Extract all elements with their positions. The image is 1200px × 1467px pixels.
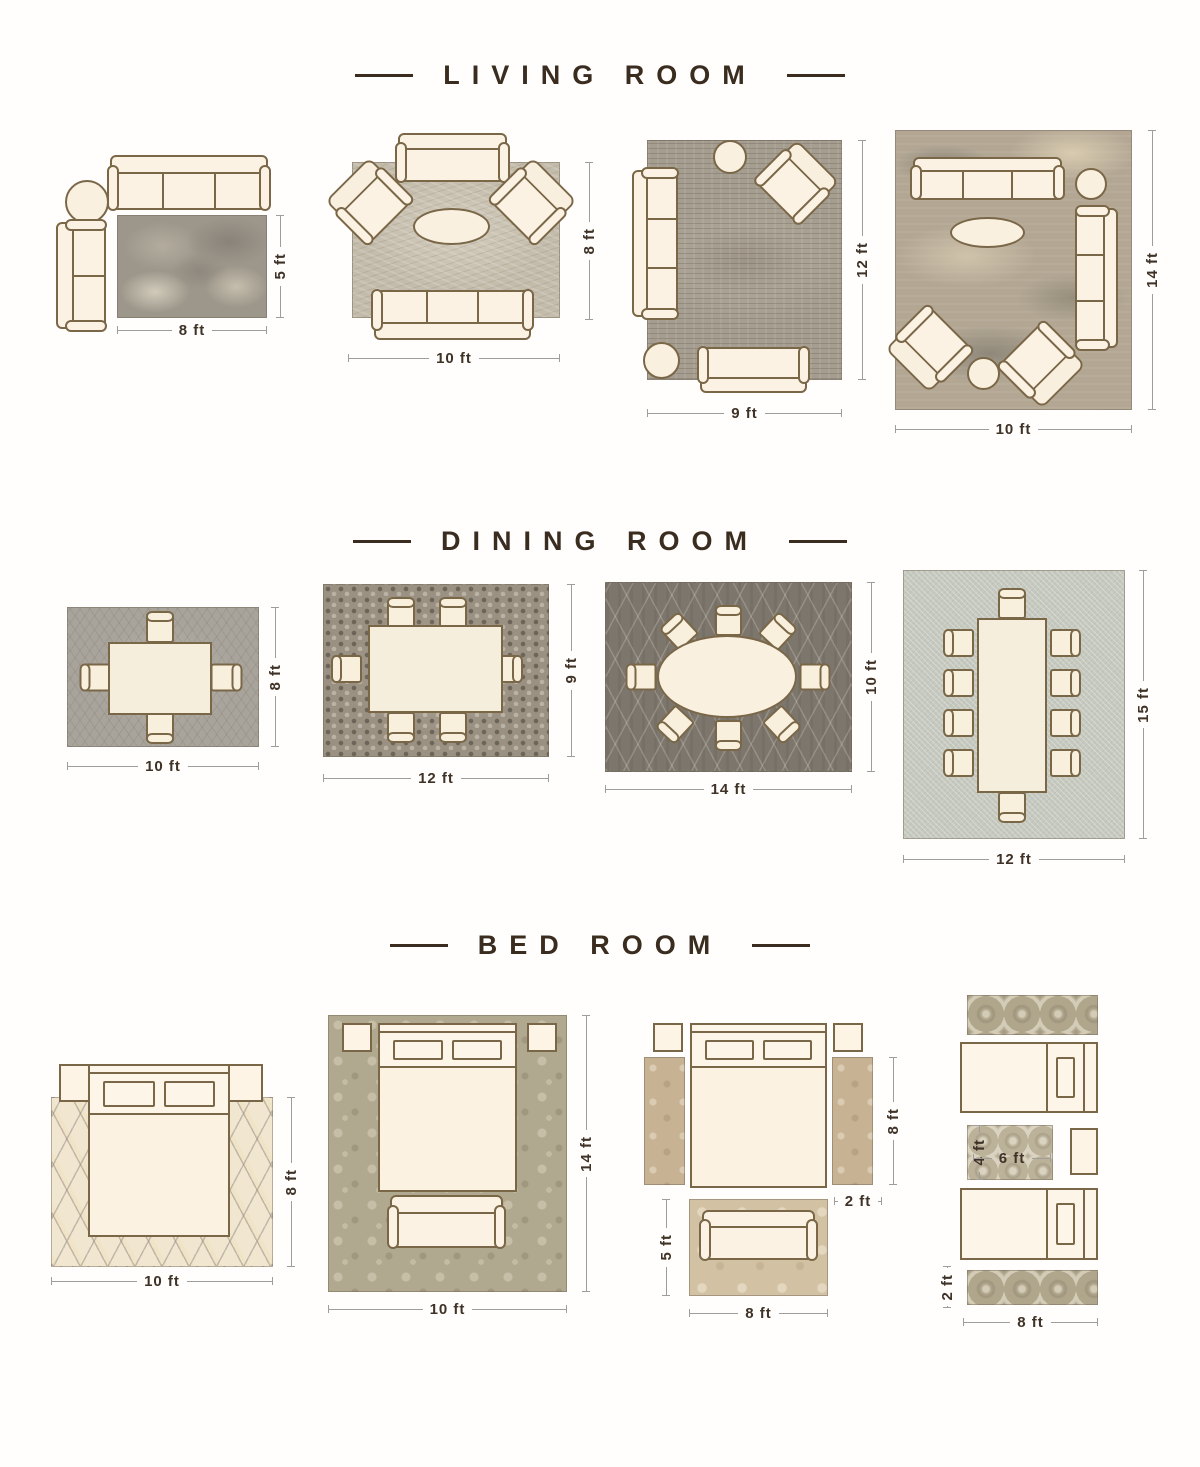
dimension-label: 6 ft	[992, 1150, 1033, 1167]
title-dash-right	[752, 944, 810, 947]
dining-layout-9x12: 12 ft 9 ft	[323, 584, 585, 794]
round-side-table-top	[1075, 168, 1107, 200]
pillow	[164, 1081, 216, 1107]
bench	[702, 1210, 815, 1260]
living-room-section-title: LIVING ROOM	[0, 60, 1200, 91]
rug-width-dimension: 8 ft	[117, 322, 267, 338]
dimension-label: 5 ft	[272, 247, 289, 286]
sofa-three-seat-vertical	[1075, 208, 1118, 348]
dimension-label: 2 ft	[939, 1268, 956, 1307]
dining-chair-right-1	[1050, 629, 1076, 657]
pillow	[705, 1040, 754, 1060]
dimension-label: 15 ft	[1135, 681, 1152, 729]
dining-room-section-title: DINING ROOM	[0, 526, 1200, 557]
living-layout-8x10: 10 ft 8 ft	[330, 118, 615, 376]
nightstand	[1070, 1128, 1098, 1175]
sofa-three-seat	[110, 155, 268, 210]
sofa-back	[1103, 210, 1116, 346]
headboard	[1083, 1044, 1096, 1111]
rug-width-dimension: 10 ft	[51, 1273, 273, 1289]
bedroom-layout-8x10: 10 ft 8 ft	[45, 1058, 310, 1300]
bench-back	[392, 1197, 501, 1214]
bench-back	[704, 1212, 813, 1228]
loveseat-vertical	[56, 222, 106, 329]
dimension-label: 12 ft	[854, 236, 871, 284]
sofa-back	[112, 157, 266, 174]
living-layout-5x8: 8 ft 5 ft	[40, 130, 302, 358]
loveseat	[700, 347, 807, 393]
sofa-back	[400, 135, 505, 150]
rug-width-dimension: 12 ft	[323, 770, 549, 786]
dimension-label: 9 ft	[563, 651, 580, 690]
blanket	[692, 1066, 825, 1186]
pillow	[452, 1040, 502, 1060]
sofa-back	[702, 377, 805, 391]
nightstand-left	[342, 1023, 372, 1052]
dining-chair-right	[800, 664, 826, 691]
dimension-label: 12 ft	[411, 770, 461, 787]
dining-chair-left	[631, 664, 657, 691]
dining-chair-top	[715, 610, 742, 636]
dining-layout-8x10: 10 ft 8 ft	[62, 600, 302, 790]
runner-height-dimension: 8 ft	[885, 1057, 901, 1185]
dining-chair-right-4	[1050, 749, 1076, 777]
rug-height-dimension: 8 ft	[581, 162, 597, 320]
rug-height-dimension: 12 ft	[854, 140, 870, 380]
dimension-label: 8 ft	[172, 322, 213, 339]
rug-width-dimension: 9 ft	[647, 405, 842, 421]
dimension-label: 14 ft	[578, 1130, 595, 1178]
dining-chair-bottom	[146, 712, 174, 739]
sofa-three-seat	[913, 157, 1062, 200]
rug-width-dimension: 10 ft	[67, 758, 259, 774]
runner-width-dimension: 2 ft	[834, 1193, 882, 1209]
bed-width-dimension: 8 ft	[963, 1314, 1098, 1330]
dining-chair-top	[146, 616, 174, 643]
dining-chair-left-3	[948, 709, 974, 737]
dining-chair-bottom-left	[387, 712, 415, 738]
sofa-back	[58, 224, 74, 327]
dining-table	[977, 618, 1047, 793]
dining-chair-right-2	[1050, 669, 1076, 697]
dining-room-title-text: DINING ROOM	[441, 526, 759, 557]
dimension-label: 10 ft	[138, 758, 188, 775]
dimension-label: 9 ft	[724, 405, 765, 422]
dimension-label: 14 ft	[1144, 246, 1161, 294]
dining-layout-12x15: 12 ft 15 ft	[903, 570, 1165, 875]
title-dash-left	[353, 540, 411, 543]
dining-chair-left-2	[948, 669, 974, 697]
dining-chair-right-3	[1050, 709, 1076, 737]
pillow	[1056, 1057, 1076, 1099]
twin-bed-bottom	[960, 1188, 1098, 1260]
dimension-label: 10 ft	[863, 653, 880, 701]
sofa-back	[915, 159, 1060, 172]
dimension-label: 8 ft	[581, 222, 598, 261]
dimension-label: 10 ft	[989, 421, 1039, 438]
bed-room-section-title: BED ROOM	[0, 930, 1200, 961]
rug-height-dimension: 14 ft	[1144, 130, 1160, 410]
dimension-label: 2 ft	[838, 1193, 879, 1210]
bench	[390, 1195, 503, 1248]
foot-rug-height-dimension: 5 ft	[658, 1199, 674, 1296]
dining-chair-bottom	[998, 792, 1026, 818]
bedroom-layout-twin-beds: 4 ft 6 ft 2 ft 8 ft	[935, 990, 1193, 1340]
bedroom-layout-runners: 8 ft 2 ft 5 ft 8 ft	[640, 1015, 905, 1330]
rug-height-dimension: 8 ft	[283, 1097, 299, 1267]
sofa-back	[376, 322, 529, 338]
sofa-three-seat-vertical	[632, 170, 678, 317]
rug-5x8	[117, 215, 267, 318]
twin-bed-top	[960, 1042, 1098, 1113]
blanket	[380, 1066, 515, 1190]
round-side-table-top	[713, 140, 747, 174]
rug-width-dimension: 10 ft	[328, 1301, 567, 1317]
dimension-label: 5 ft	[658, 1228, 675, 1267]
round-side-table-bottom	[967, 357, 1000, 390]
foot-rug-width-dimension: 8 ft	[689, 1305, 828, 1321]
rug-width-dimension: 12 ft	[903, 851, 1125, 867]
living-layout-10x14: 10 ft 14 ft	[878, 112, 1180, 450]
rug-width-dimension: 10 ft	[895, 421, 1132, 437]
pillow	[393, 1040, 443, 1060]
dimension-label: 8 ft	[738, 1305, 779, 1322]
bedroom-layout-10x14: 10 ft 14 ft	[328, 1005, 600, 1343]
runner-width-dimension: 2 ft	[939, 1266, 955, 1308]
dining-chair-left	[336, 655, 362, 683]
dining-chair-right	[211, 664, 238, 692]
dimension-label: 8 ft	[283, 1163, 300, 1202]
title-dash-right	[789, 540, 847, 543]
nightstand-right	[833, 1023, 863, 1052]
blanket	[962, 1190, 1046, 1258]
dimension-label: 14 ft	[704, 781, 754, 798]
dimension-label: 8 ft	[1010, 1314, 1051, 1331]
bed-room-title-text: BED ROOM	[478, 930, 723, 961]
dining-chair-top	[998, 593, 1026, 619]
title-dash-right	[787, 74, 845, 77]
bed	[378, 1023, 517, 1192]
runner-rug-top	[967, 995, 1098, 1035]
rug-height-dimension: 8 ft	[267, 607, 283, 747]
dining-layout-10x14: 14 ft 10 ft	[605, 582, 883, 797]
dimension-label: 10 ft	[137, 1273, 187, 1290]
sofa-three-seat	[374, 290, 531, 340]
dining-table	[108, 642, 212, 715]
rug-height-dimension: 10 ft	[863, 582, 879, 772]
headboard	[380, 1025, 515, 1033]
round-side-table-bottom	[643, 342, 680, 379]
center-rug-width-dimension: 6 ft	[973, 1150, 1051, 1166]
runner-rug-bottom	[967, 1270, 1098, 1305]
headboard	[692, 1025, 825, 1033]
blanket	[962, 1044, 1046, 1111]
pillow	[763, 1040, 812, 1060]
living-layout-9x12: 9 ft 12 ft	[615, 130, 877, 425]
blanket	[90, 1113, 228, 1235]
runner-rug-left	[644, 1057, 685, 1185]
headboard	[1083, 1190, 1096, 1258]
title-dash-left	[390, 944, 448, 947]
oval-coffee-table	[950, 217, 1025, 248]
pillow	[103, 1081, 155, 1107]
dining-chair-bottom-right	[439, 712, 467, 738]
dining-chair-left-1	[948, 629, 974, 657]
dimension-label: 10 ft	[429, 350, 479, 367]
bed	[88, 1064, 230, 1237]
nightstand-left	[653, 1023, 683, 1052]
dining-chair-left-4	[948, 749, 974, 777]
dimension-label: 8 ft	[885, 1102, 902, 1141]
dining-chair-bottom	[715, 720, 742, 746]
title-dash-left	[355, 74, 413, 77]
bed	[690, 1023, 827, 1188]
headboard	[90, 1066, 228, 1074]
dimension-label: 12 ft	[989, 851, 1039, 868]
loveseat	[398, 133, 507, 182]
rug-height-dimension: 5 ft	[272, 215, 288, 318]
oval-dining-table	[657, 635, 797, 718]
living-room-title-text: LIVING ROOM	[443, 60, 757, 91]
oval-coffee-table	[413, 208, 490, 245]
dimension-label: 8 ft	[267, 658, 284, 697]
round-side-table	[65, 180, 109, 224]
rug-height-dimension: 14 ft	[578, 1015, 594, 1292]
rug-width-dimension: 14 ft	[605, 781, 852, 797]
rug-width-dimension: 10 ft	[348, 350, 560, 366]
rug-height-dimension: 9 ft	[563, 584, 579, 757]
sofa-back	[634, 172, 648, 315]
dimension-label: 10 ft	[423, 1301, 473, 1318]
runner-rug-right	[832, 1057, 873, 1185]
dining-table	[368, 625, 503, 713]
rug-height-dimension: 15 ft	[1135, 570, 1151, 839]
rug-size-guide: LIVING ROOM 8 ft 5 ft	[0, 0, 1200, 1467]
nightstand-right	[527, 1023, 557, 1052]
pillow	[1056, 1203, 1076, 1245]
